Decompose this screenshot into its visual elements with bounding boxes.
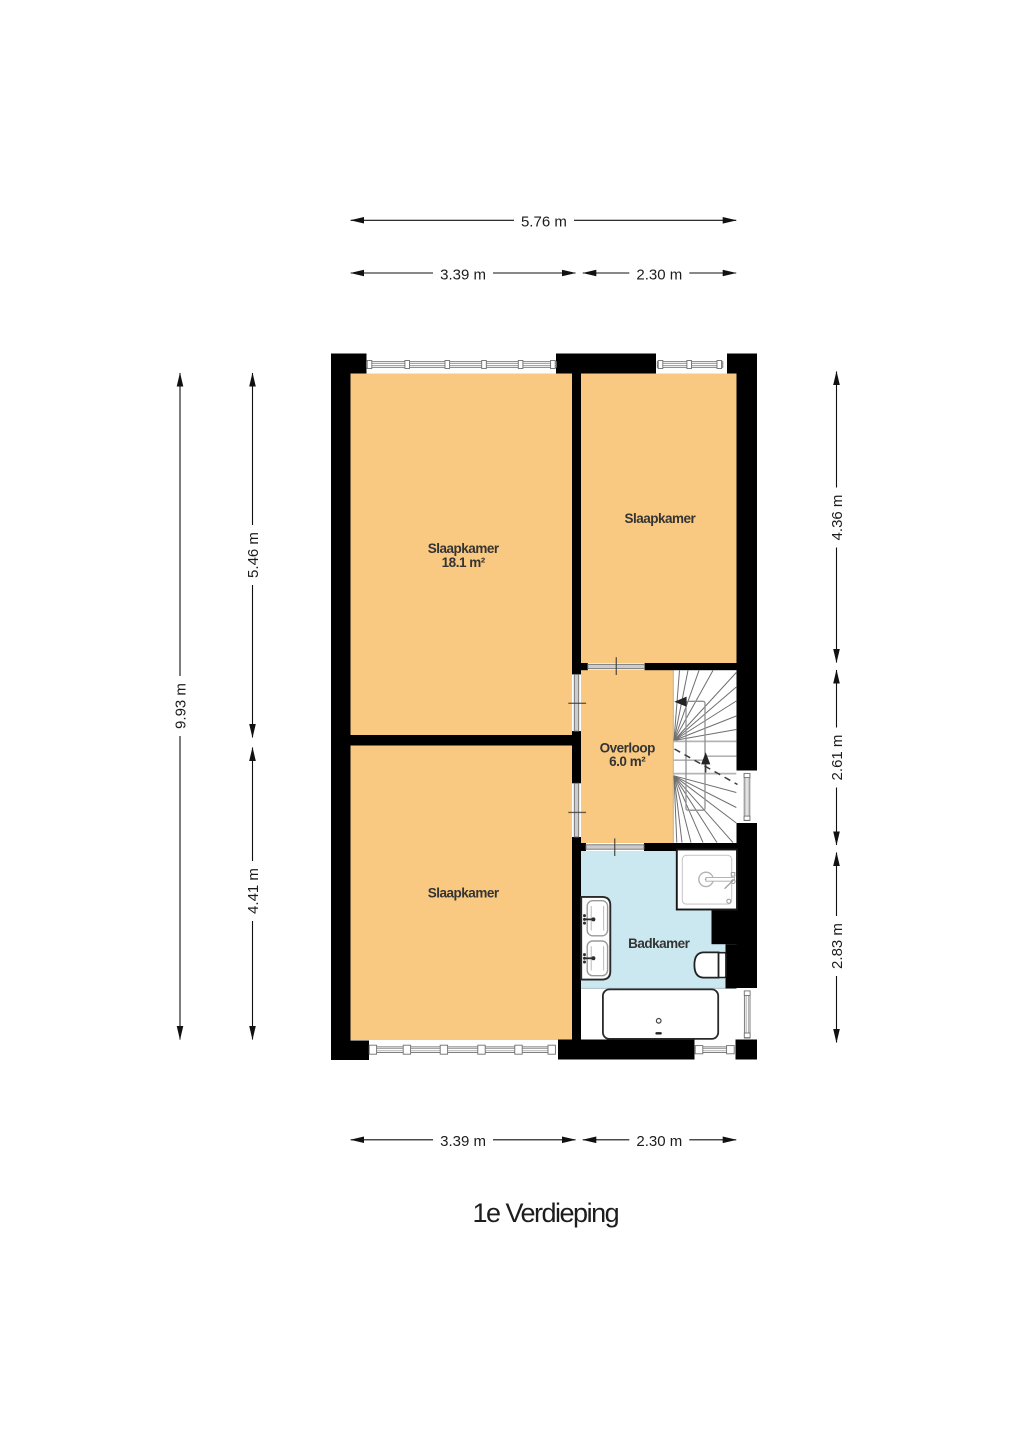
svg-text:5.46 m: 5.46 m xyxy=(245,532,262,578)
svg-text:2.30 m: 2.30 m xyxy=(636,266,682,283)
svg-text:3.39 m: 3.39 m xyxy=(440,266,486,283)
svg-text:Slaapkamer: Slaapkamer xyxy=(624,511,696,526)
svg-text:4.36 m: 4.36 m xyxy=(829,495,846,541)
svg-text:1e Verdieping: 1e Verdieping xyxy=(472,1198,618,1228)
svg-text:4.41 m: 4.41 m xyxy=(245,868,262,914)
svg-text:Slaapkamer: Slaapkamer xyxy=(428,886,500,901)
svg-text:2.30 m: 2.30 m xyxy=(636,1133,682,1150)
svg-text:2.83 m: 2.83 m xyxy=(829,923,846,969)
svg-text:5.76 m: 5.76 m xyxy=(521,214,567,231)
svg-text:18.1 m²: 18.1 m² xyxy=(442,555,486,570)
svg-text:Badkamer: Badkamer xyxy=(628,936,691,951)
svg-text:9.93 m: 9.93 m xyxy=(172,683,189,729)
svg-text:3.39 m: 3.39 m xyxy=(440,1133,486,1150)
svg-text:6.0 m²: 6.0 m² xyxy=(609,754,646,769)
svg-text:2.61 m: 2.61 m xyxy=(829,735,846,781)
